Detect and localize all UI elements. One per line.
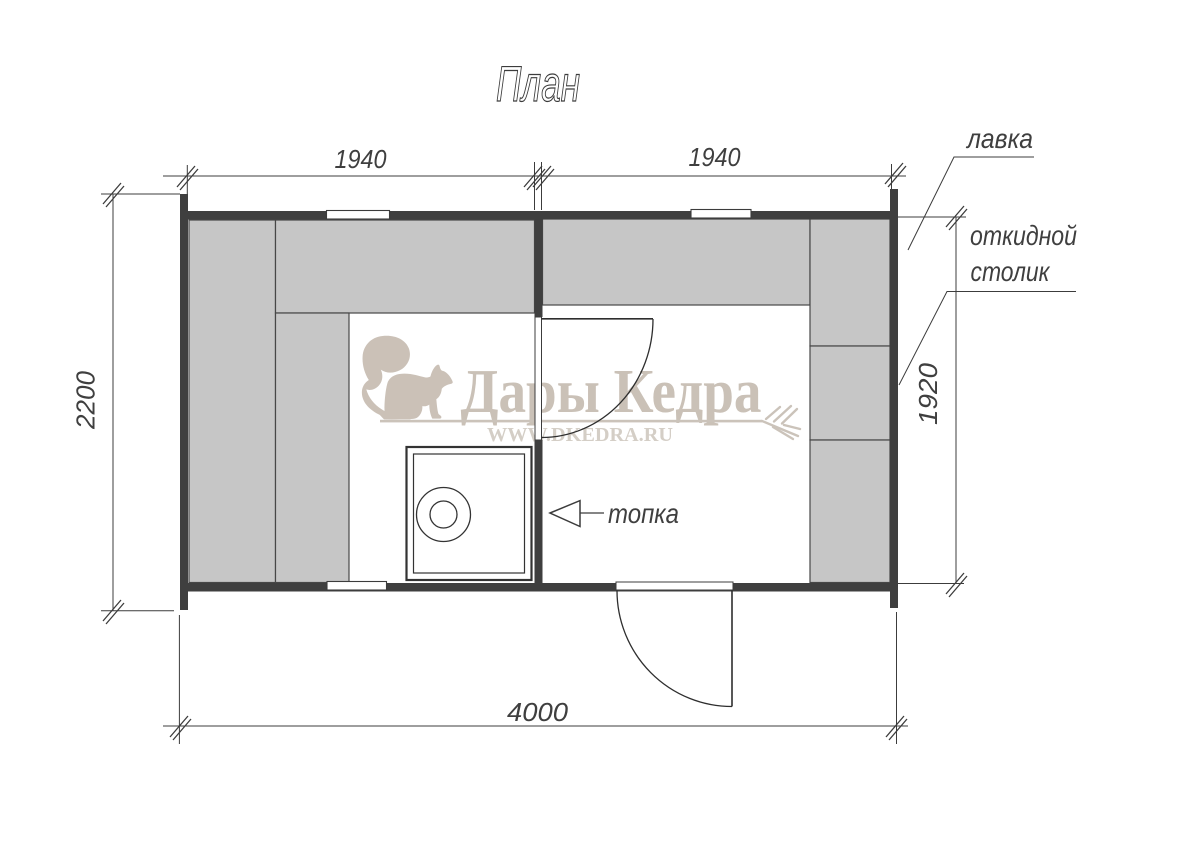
svg-text:План: План [496, 56, 580, 112]
svg-text:топка: топка [608, 498, 679, 529]
svg-text:1920: 1920 [913, 362, 943, 425]
svg-text:откидной: откидной [970, 220, 1077, 251]
svg-text:WWW.DKEDRA.RU: WWW.DKEDRA.RU [487, 424, 673, 446]
svg-text:Дары Кедра: Дары Кедра [461, 358, 762, 426]
svg-text:4000: 4000 [507, 697, 569, 727]
svg-text:1940: 1940 [335, 144, 387, 174]
svg-text:2200: 2200 [71, 370, 101, 430]
svg-text:лавка: лавка [965, 123, 1033, 154]
svg-text:столик: столик [971, 256, 1051, 287]
svg-text:1940: 1940 [689, 142, 741, 172]
